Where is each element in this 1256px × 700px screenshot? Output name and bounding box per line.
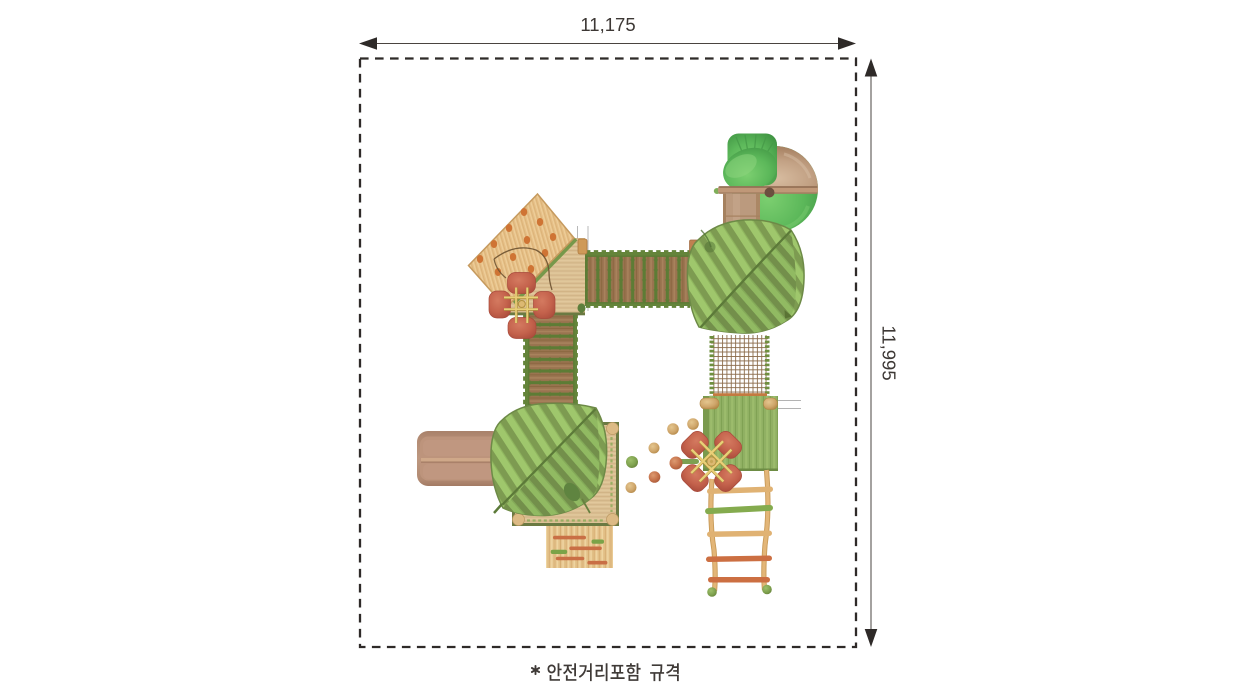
svg-text:11,995: 11,995 xyxy=(879,325,900,380)
svg-text:11,175: 11,175 xyxy=(580,14,635,35)
